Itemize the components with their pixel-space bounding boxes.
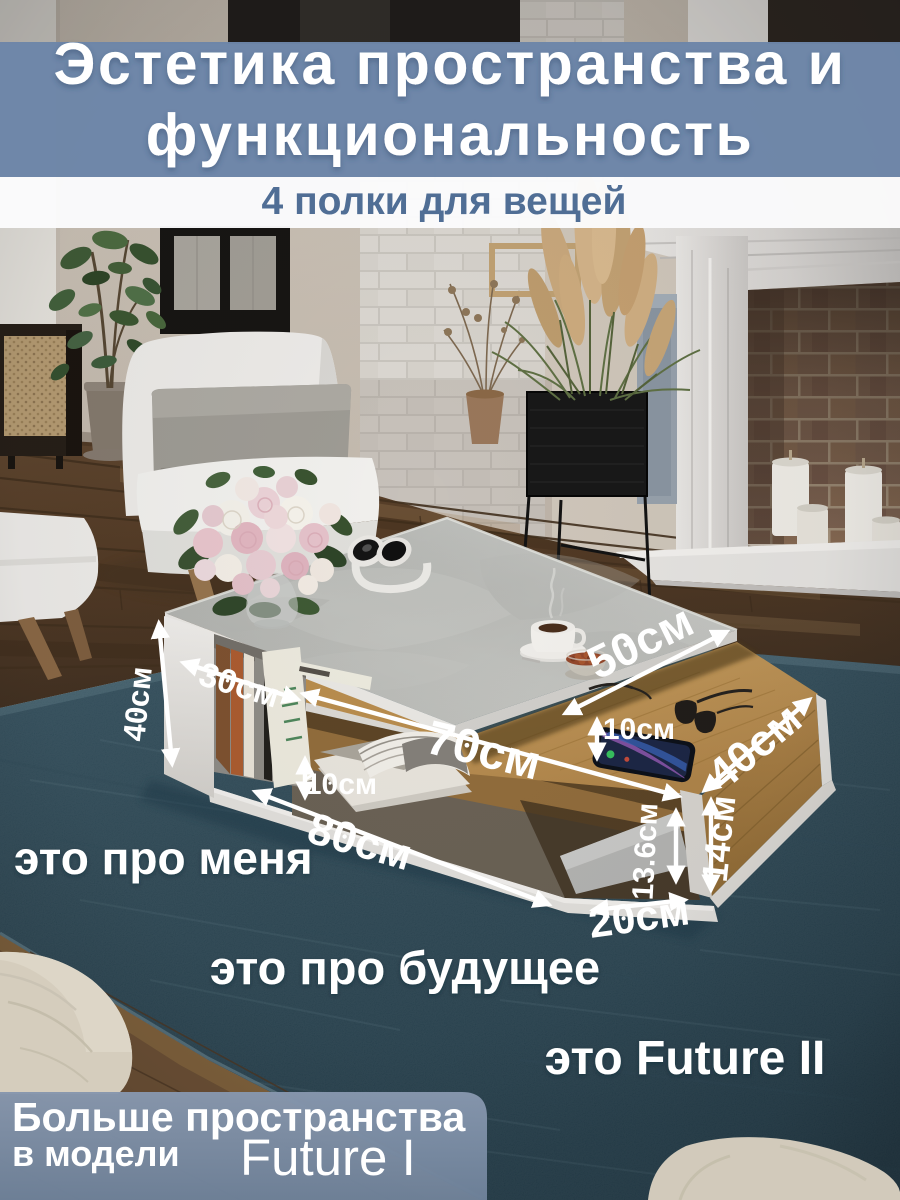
svg-text:13.6см: 13.6см	[626, 802, 664, 901]
svg-text:4 полки для вещей: 4 полки для вещей	[262, 180, 627, 223]
svg-text:10см: 10см	[305, 768, 377, 801]
svg-text:в модели: в модели	[12, 1133, 180, 1174]
svg-text:это про будущее: это про будущее	[210, 941, 600, 994]
svg-text:10см: 10см	[603, 713, 675, 746]
svg-text:это про меня: это про меня	[14, 832, 313, 884]
svg-text:Эстетика пространства и: Эстетика пространства и	[54, 31, 847, 97]
svg-text:это Future II: это Future II	[545, 1032, 826, 1085]
svg-text:Future I: Future I	[240, 1129, 416, 1186]
svg-text:функциональность: функциональность	[146, 102, 754, 168]
